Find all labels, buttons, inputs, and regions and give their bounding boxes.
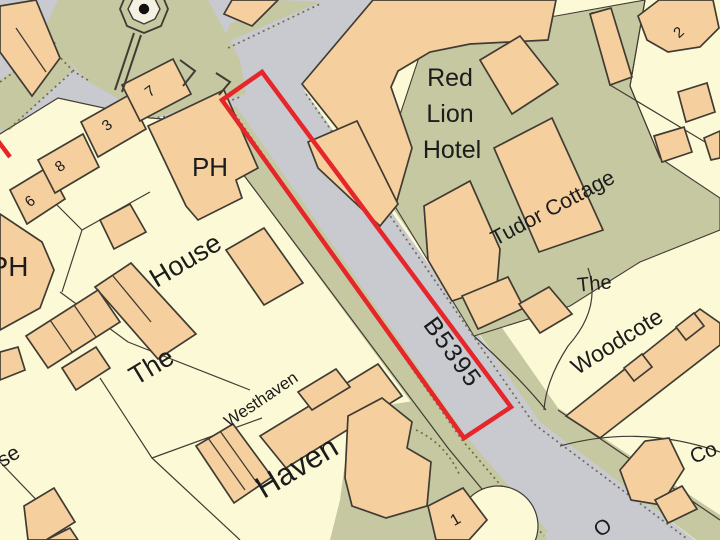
label-ph-left: PH xyxy=(0,251,28,282)
label-ph-upper: PH xyxy=(192,152,228,182)
os-map: Red Lion Hotel Tudor Cottage The Woodcot… xyxy=(0,0,720,540)
label-the-right: The xyxy=(576,271,613,296)
label-red-lion-line1: Red xyxy=(427,64,473,92)
map-canvas: Red Lion Hotel Tudor Cottage The Woodcot… xyxy=(0,0,720,540)
label-red-lion-line3: Hotel xyxy=(423,136,481,164)
label-red-lion-line2: Lion xyxy=(426,100,473,128)
monument-dot xyxy=(139,4,149,14)
